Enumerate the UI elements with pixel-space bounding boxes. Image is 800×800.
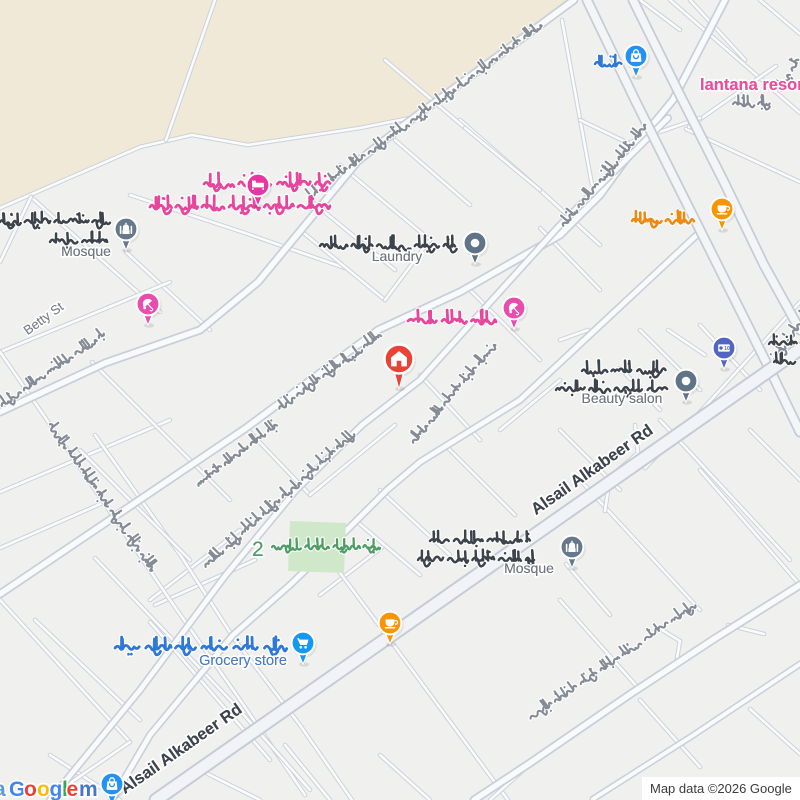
svg-text:aGooglem: aGooglem (0, 778, 98, 800)
svg-text:2: 2 (252, 538, 264, 561)
svg-text:Mosque: Mosque (504, 560, 554, 576)
svg-text:Map data ©2026 Google: Map data ©2026 Google (650, 781, 792, 796)
svg-text:Grocery store: Grocery store (199, 653, 287, 669)
svg-text:100: 100 (724, 346, 733, 352)
svg-text:Laundry: Laundry (372, 248, 423, 264)
svg-text:Beauty salon: Beauty salon (582, 390, 663, 406)
svg-text:Mosque: Mosque (61, 243, 111, 259)
svg-text:lantana resor: lantana resor (700, 76, 800, 94)
